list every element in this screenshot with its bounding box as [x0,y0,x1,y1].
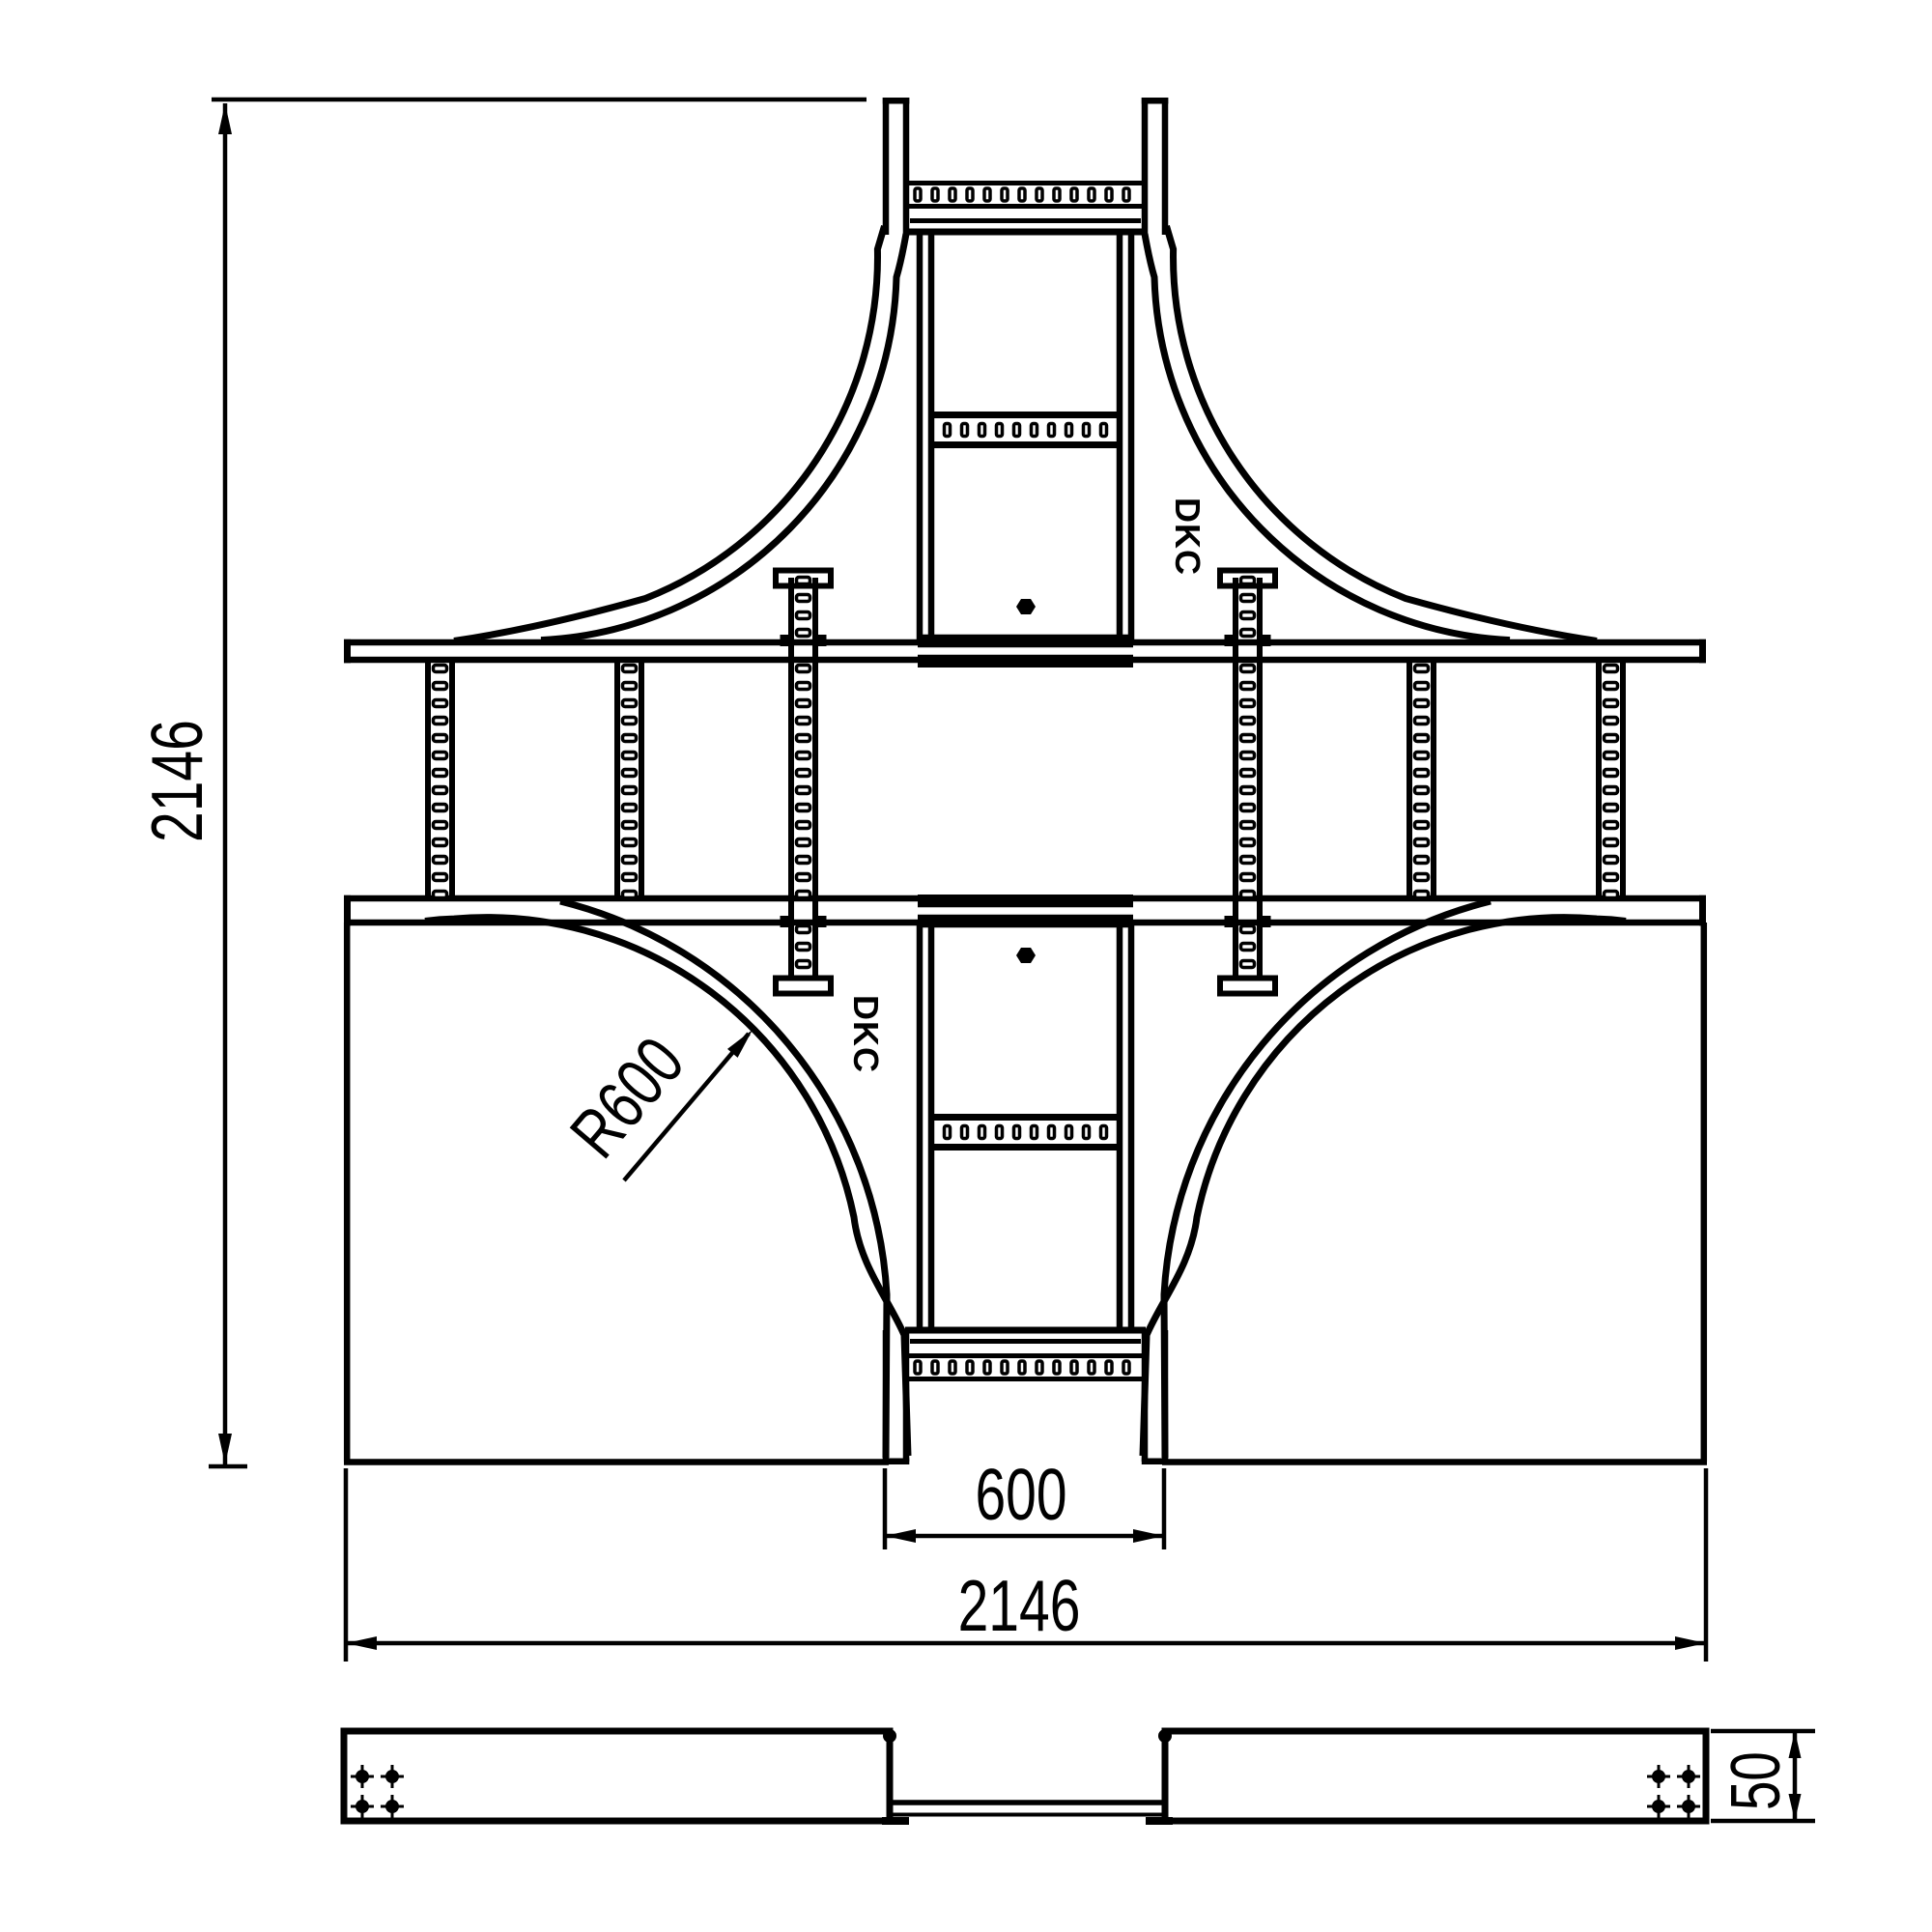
svg-text:600: 600 [975,1456,1066,1536]
svg-text:DKC: DKC [846,995,886,1073]
svg-text:DKC: DKC [1168,497,1207,576]
svg-text:2146: 2146 [958,1567,1081,1647]
svg-text:50: 50 [1717,1751,1795,1810]
svg-text:2146: 2146 [138,720,218,842]
